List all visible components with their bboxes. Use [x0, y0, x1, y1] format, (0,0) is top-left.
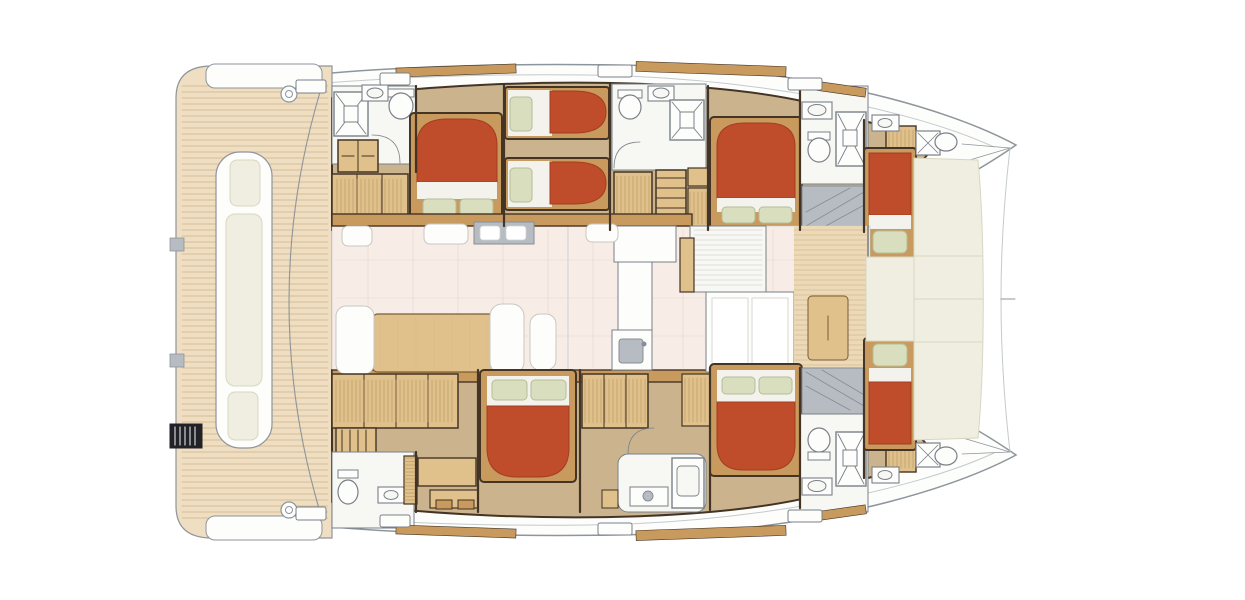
desk-stool-2 [458, 500, 474, 509]
bed-twin-2-duvet [550, 162, 606, 204]
shower-fwd-bottom-pan [843, 450, 857, 466]
sink-mid-top-basin [653, 88, 669, 98]
bed-double-aft-top-duvet [417, 119, 497, 182]
salon-chaise-2 [530, 314, 556, 370]
winch-top [281, 86, 297, 102]
cooktop-pad-left [480, 226, 500, 240]
bed-double-aft-bottom-pillow-r [531, 380, 566, 400]
toilet-fwd-bottom-tank [808, 452, 830, 460]
bed-double-aft-bottom-pillow-l [492, 380, 527, 400]
toilet-mid-top-bowl [619, 95, 641, 119]
deck-hatch-bottom-3 [598, 523, 632, 535]
bed-double-mid-bottom-pillow-l [722, 377, 755, 394]
shower-aft-top-pan [344, 106, 358, 122]
bed-double-aft-bottom-duvet [487, 406, 569, 477]
salon-bench-left [336, 306, 374, 374]
bed-twin-1-duvet [550, 91, 606, 133]
cabinet-mid-bottom [682, 374, 710, 426]
galley-sink-faucet [642, 342, 647, 347]
cockpit-bench-pad [226, 214, 262, 386]
side-step-top [170, 238, 184, 251]
salon-chaise-1 [490, 304, 524, 374]
bed-single-fwd-top-duvet [869, 153, 911, 215]
side-step-bottom [170, 354, 184, 367]
galley-cabinet-mid [618, 262, 652, 332]
wardrobe-mid-bottom [582, 374, 648, 428]
desk-stool-1 [436, 500, 452, 509]
bed-double-mid-bottom-duvet [717, 402, 795, 470]
salon-cushion-3 [586, 224, 618, 242]
toilet-aft-bottom-bowl [338, 480, 358, 504]
bed-double-mid-top-pillow-r [759, 207, 792, 223]
bed-twin-2-pillow [510, 168, 532, 202]
deck-hatch-bottom-2 [380, 515, 410, 527]
sink-aft-top-basin [367, 88, 383, 98]
toilet-fwd-top-bowl [808, 138, 830, 162]
desk-bottom [418, 458, 476, 486]
bed-single-fwd-top-pillow [873, 231, 907, 253]
bed-single-fwd-top-sheet [869, 215, 911, 229]
cooktop-pad-right [506, 226, 526, 240]
wardrobe-row-aft-bottom [332, 374, 458, 428]
galley-windows [690, 226, 766, 292]
sink-aft-bottom-basin [384, 491, 398, 500]
deck-hatch-top-4 [788, 78, 822, 90]
cockpit-bench-seat-bottom [228, 392, 258, 440]
bed-double-mid-top-duvet [717, 123, 795, 198]
deck-hatch-top-2 [380, 73, 410, 85]
sink-bow-bottom-basin [878, 471, 892, 480]
bed-twin-1-pillow [510, 97, 532, 131]
galley-sink-basin [619, 339, 643, 363]
toilet-fwd-bottom-bowl [808, 428, 830, 452]
galley-counter [614, 226, 676, 262]
bed-double-mid-bottom-pillow-r [759, 377, 792, 394]
stool-mid-bottom [602, 490, 618, 508]
sink-fwd-bottom-basin [808, 481, 826, 492]
deck-hatch-bottom-4 [788, 510, 822, 522]
sink-fwd-top-basin [808, 105, 826, 116]
sink-mid-bottom-basin [643, 491, 653, 501]
salon-sliding-door-left-pane [712, 298, 748, 366]
bow-bridle-top [1001, 148, 1010, 299]
bed-single-fwd-bottom-pillow [873, 344, 907, 366]
deck-hatch-top-1 [296, 80, 326, 93]
bed-single-fwd-bottom-sheet [869, 368, 911, 382]
bed-double-mid-top-pillow-l [722, 207, 755, 223]
bow-bridle-bottom [1001, 299, 1010, 452]
bed-double-aft-top-sheet [417, 182, 497, 199]
wardrobe-aft-top [332, 174, 408, 220]
catamaran-floor-plan-svg [0, 0, 1245, 600]
salon-cushion-2 [424, 224, 468, 244]
deck-hatch-bottom-1 [296, 507, 326, 520]
deck-hatch-top-3 [598, 65, 632, 77]
toilet-bow-bottom [935, 447, 957, 465]
bed-single-fwd-bottom-duvet [869, 382, 911, 444]
salon-sliding-door-right-pane [752, 298, 788, 366]
galley-tall-cabinet [680, 238, 694, 292]
cockpit-bench-seat-top [230, 160, 260, 206]
shower-mid-top-pan [680, 112, 694, 128]
toilet-aft-bottom-tank [338, 470, 358, 478]
toilet-bow-top [935, 133, 957, 151]
shower-mid-bottom-pan [677, 466, 699, 496]
winch-bottom [281, 502, 297, 518]
shower-fwd-top-pan [843, 130, 857, 146]
foredeck-center-pad [866, 257, 914, 341]
salon-cushion-1 [342, 226, 372, 246]
sink-bow-top-basin [878, 119, 892, 128]
floor-plan-canvas [0, 0, 1245, 600]
